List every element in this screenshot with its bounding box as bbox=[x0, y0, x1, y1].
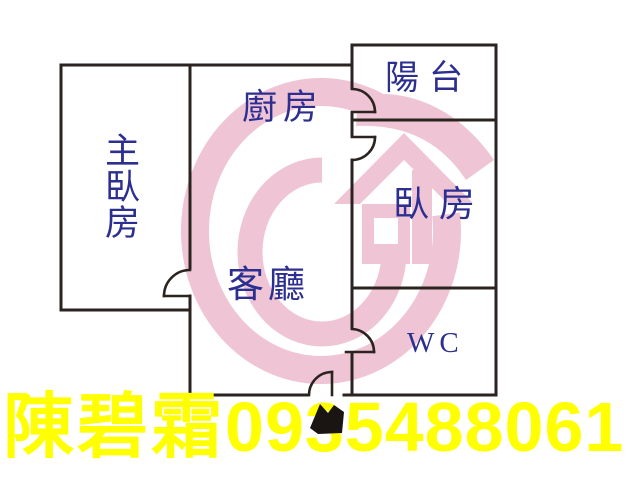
floor-plan-canvas: 主臥房 廚房 陽台 臥房 客廳 WC 陳碧霜0935488061 bbox=[0, 0, 635, 480]
room-label-bedroom: 臥房 bbox=[393, 186, 485, 222]
room-label-living-room: 客廳 bbox=[227, 267, 309, 304]
agent-phone-number: 0935488061 bbox=[225, 392, 624, 462]
master-bedroom-door-icon bbox=[164, 270, 190, 296]
room-label-wc: WC bbox=[407, 329, 464, 358]
room-label-balcony: 陽台 bbox=[385, 62, 473, 96]
entrance-arrow-icon bbox=[306, 401, 348, 436]
room-label-kitchen: 廚房 bbox=[242, 90, 324, 125]
room-label-master-bedroom: 主臥房 bbox=[102, 132, 137, 240]
agent-name: 陳碧霜 bbox=[3, 392, 225, 463]
